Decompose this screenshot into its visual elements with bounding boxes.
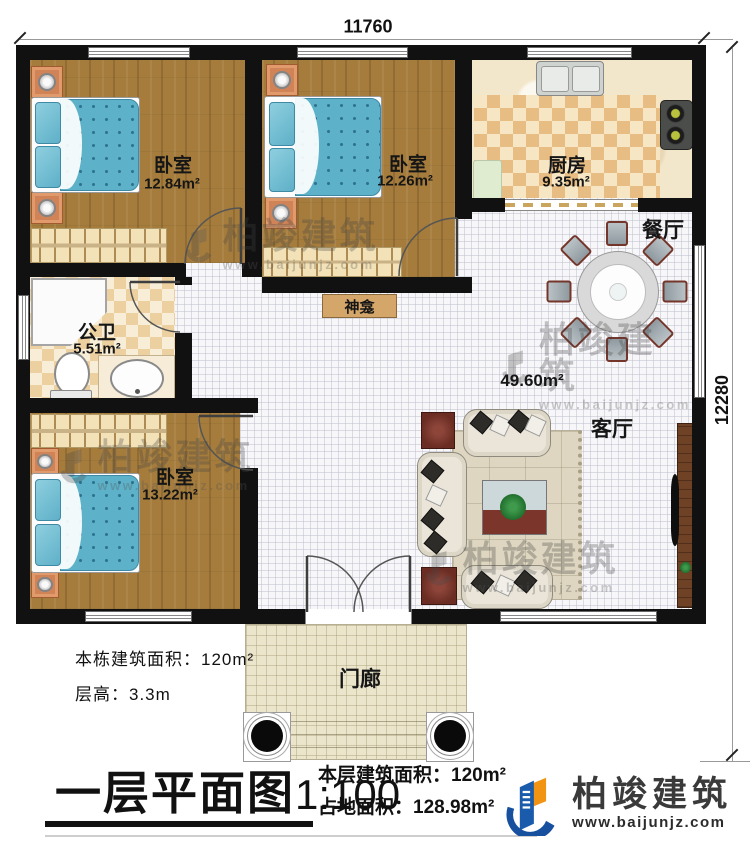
bedroom3-label: 卧室 [156,463,194,490]
building-area-note: 本栋建筑面积：120m² [75,645,254,670]
bedroom1-label: 卧室 [154,151,192,178]
baijun-logo-icon [502,772,562,836]
bedroom1-area: 12.84m² [144,176,200,193]
bedroom2-area: 12.26m² [377,173,433,190]
dimension-line-top [20,39,733,40]
title-rule-thick [45,821,313,827]
shrine-label: 神龛 [344,296,374,317]
floor-plan-page: 神龛 柏竣建筑 www.baijunjz.com 柏竣建筑 www.baijun… [0,0,750,847]
company-name: 柏竣建筑 [572,777,732,812]
page-title: 一层平面图 [55,757,295,823]
floor-area-note: 本层建筑面积：120m² [318,760,506,787]
footprint-area-note: 占地面积：128.98m² [318,792,494,819]
dimension-top: 11760 [343,17,392,38]
dining-label: 餐厅 [642,214,684,244]
living-area: 49.60m² [500,371,563,391]
company-website: www.baijunjz.com [572,814,732,831]
kitchen-area: 9.35m² [542,174,590,191]
title-rule-thin [45,835,537,837]
door-arcs-layer [0,0,750,847]
living-label: 客厅 [591,413,633,443]
shrine-box: 神龛 [322,294,397,318]
company-logo: 柏竣建筑 www.baijunjz.com [502,772,732,836]
porch-label: 门廊 [339,663,381,693]
dimension-extension-line [700,761,750,762]
floor-height-note: 层高：3.3m [75,680,171,705]
bathroom-area: 5.51m² [73,341,121,358]
bedroom3-area: 13.22m² [142,487,198,504]
dimension-right: 12280 [712,375,733,425]
